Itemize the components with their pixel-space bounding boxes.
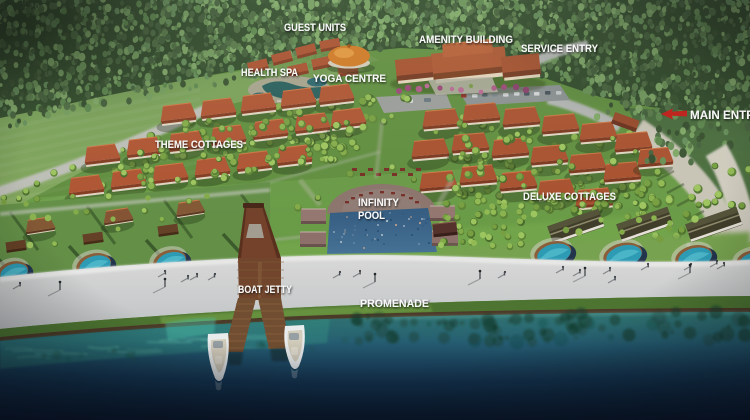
svg-text:MAIN ENTRY: MAIN ENTRY xyxy=(690,108,750,122)
svg-text:GUEST UNITS: GUEST UNITS xyxy=(284,22,346,34)
svg-text:DELUXE COTTAGES: DELUXE COTTAGES xyxy=(523,191,616,203)
svg-text:AMENITY BUILDING: AMENITY BUILDING xyxy=(419,34,513,46)
svg-text:BOAT JETTY: BOAT JETTY xyxy=(238,284,293,296)
svg-text:THEME COTTAGES: THEME COTTAGES xyxy=(155,139,243,151)
svg-text:YOGA CENTRE: YOGA CENTRE xyxy=(313,73,386,85)
svg-text:INFINITY: INFINITY xyxy=(358,197,400,209)
svg-text:HEALTH SPA: HEALTH SPA xyxy=(241,67,298,79)
svg-text:POOL: POOL xyxy=(358,210,385,222)
svg-text:SERVICE ENTRY: SERVICE ENTRY xyxy=(521,43,599,55)
svg-text:PROMENADE: PROMENADE xyxy=(360,298,429,310)
